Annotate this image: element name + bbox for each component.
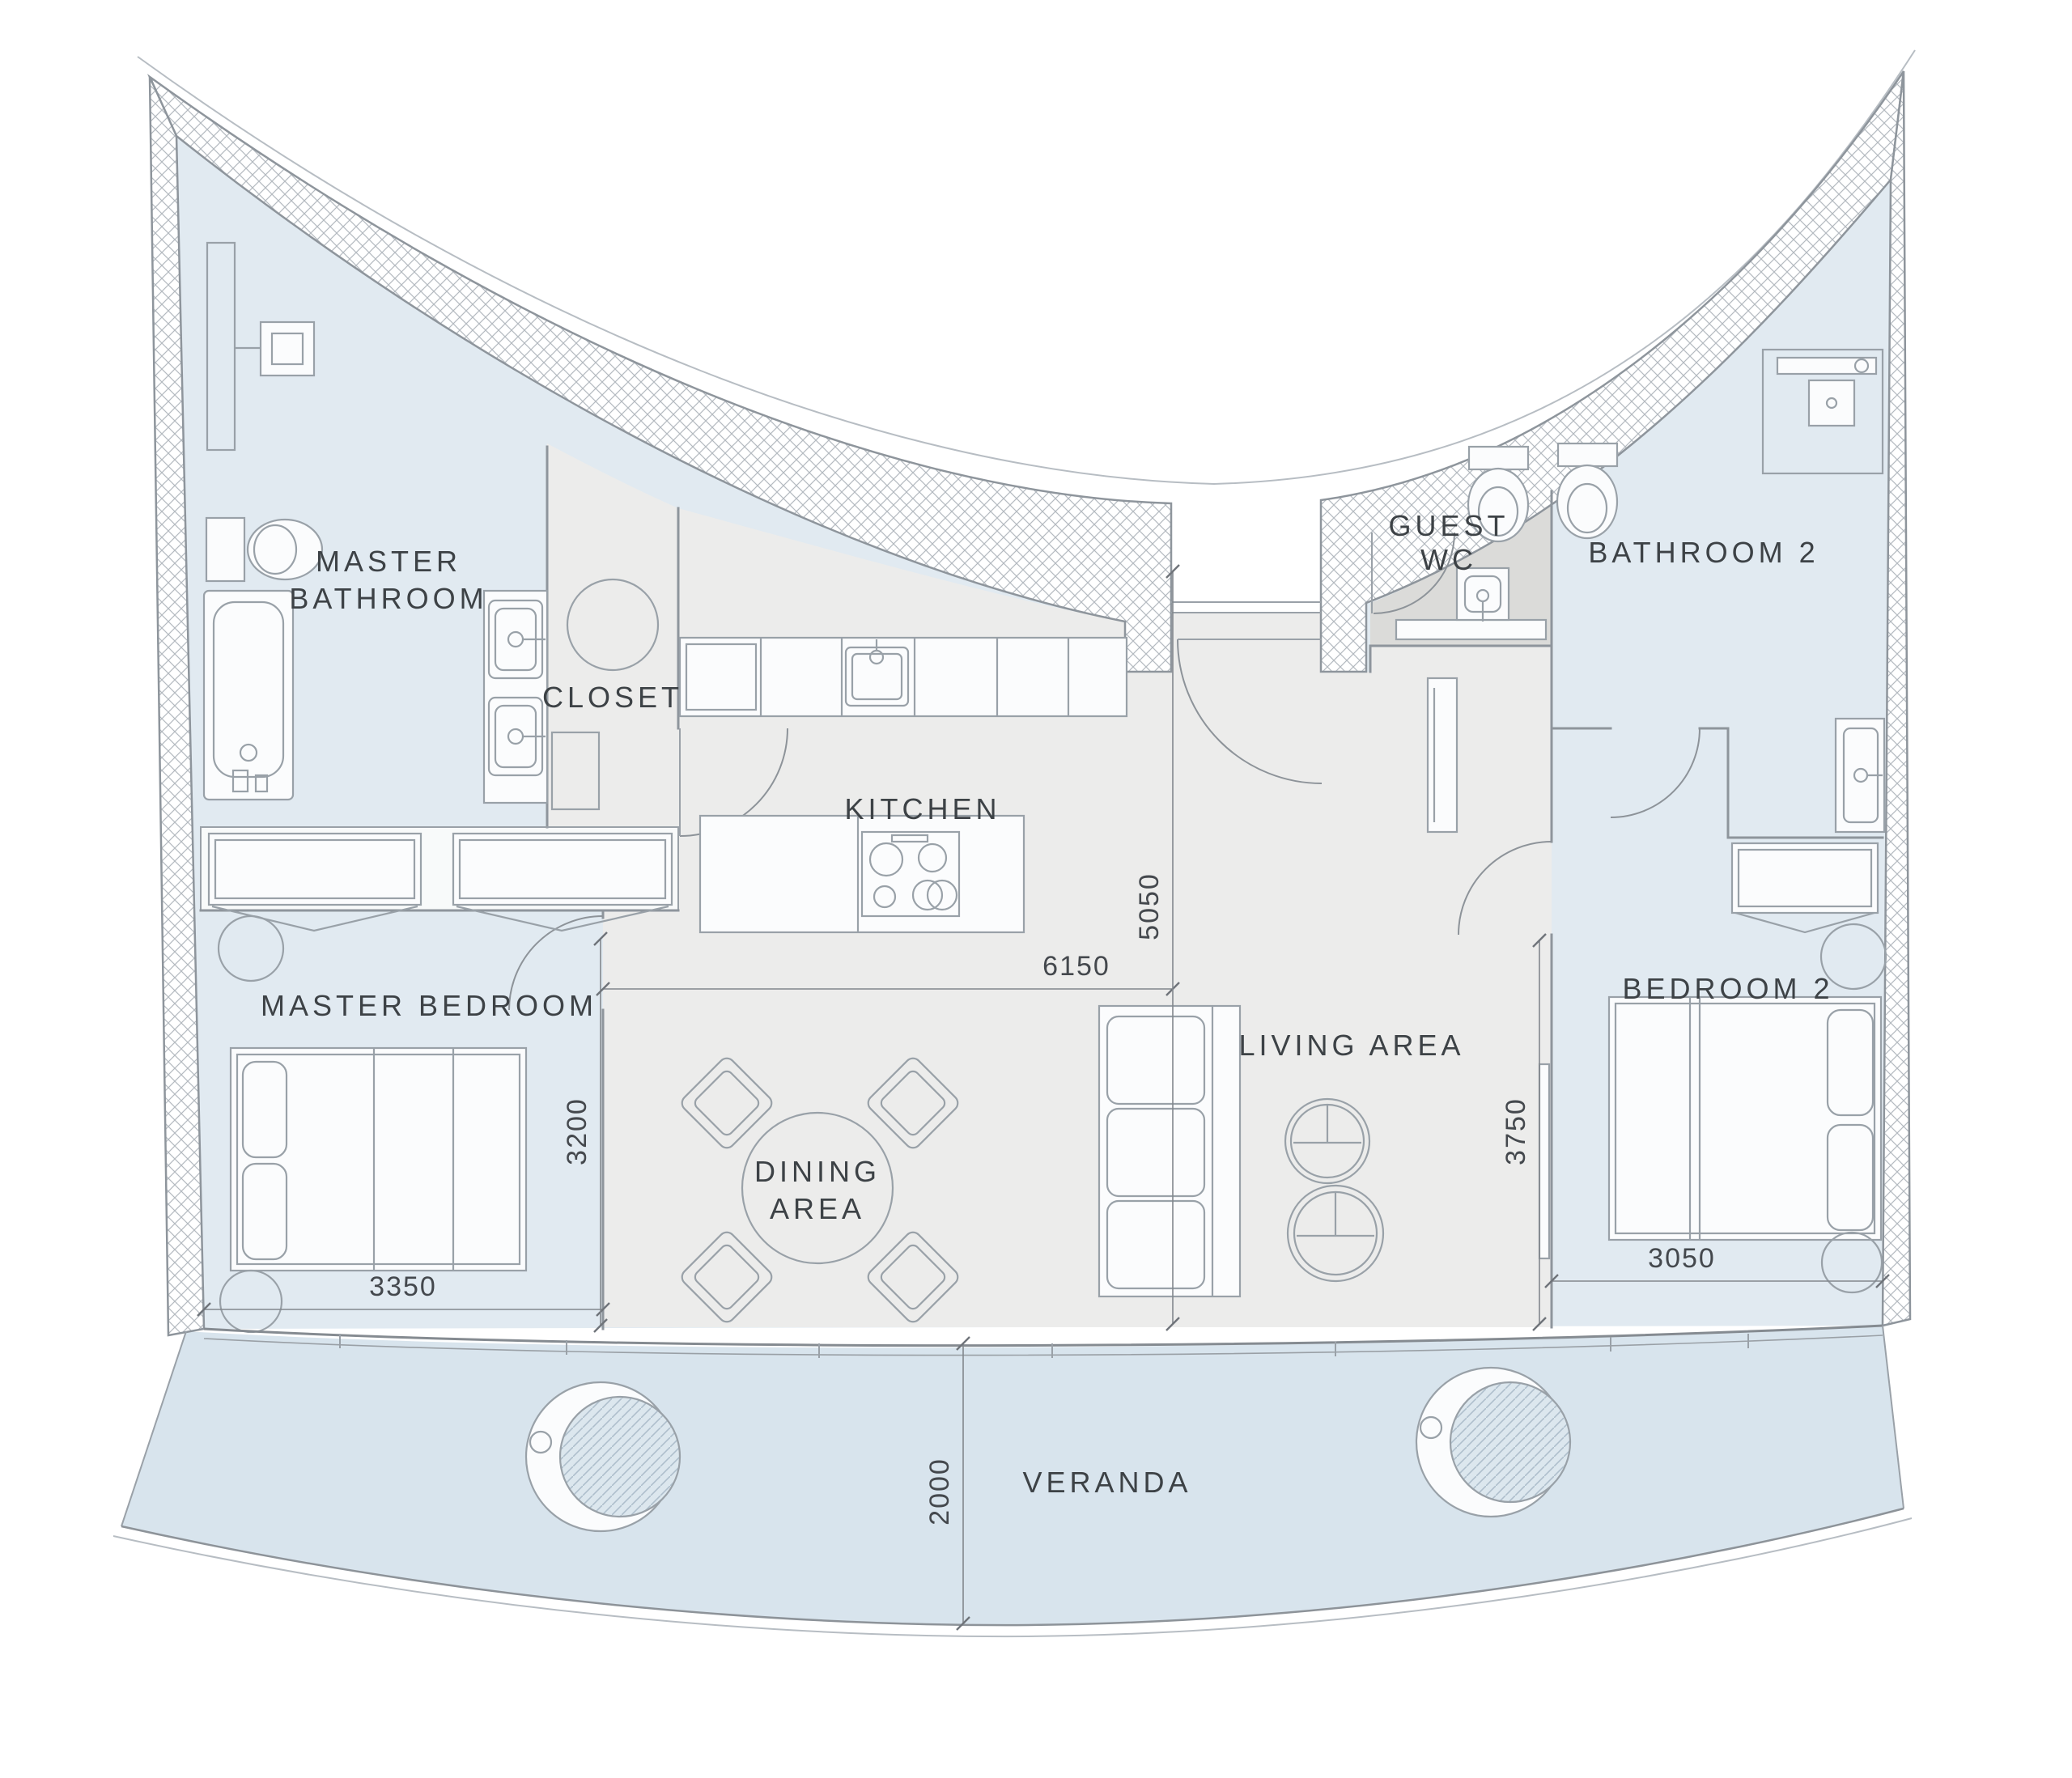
wardrobe-right bbox=[453, 834, 672, 905]
dim-text-3750: 3750 bbox=[1501, 1097, 1531, 1165]
toilet2-bowl bbox=[1557, 465, 1617, 538]
label-master-bathroom-line1: MASTER bbox=[316, 545, 461, 578]
pillow-2 bbox=[243, 1164, 287, 1259]
sofa-cushion-1 bbox=[1107, 1016, 1204, 1104]
room-fill-closet bbox=[547, 443, 678, 827]
label-dining-area-line1: DINING bbox=[754, 1155, 881, 1188]
hall-cabinet bbox=[1428, 678, 1457, 832]
dim-text-2000: 2000 bbox=[924, 1458, 955, 1526]
dim-text-5050: 5050 bbox=[1134, 872, 1165, 940]
sofa-cushion-3 bbox=[1107, 1201, 1204, 1288]
label-veranda: VERANDA bbox=[1022, 1466, 1191, 1499]
toilet2-tank bbox=[1558, 443, 1617, 466]
wardrobe-left bbox=[209, 834, 421, 905]
bed2-pillow-1 bbox=[1828, 1010, 1873, 1115]
kitchen-sink bbox=[846, 647, 908, 706]
dim-text-3050: 3050 bbox=[1648, 1243, 1716, 1274]
shower2-head bbox=[1809, 380, 1854, 426]
lounger-right-mattress bbox=[1450, 1382, 1570, 1502]
guest-wc-counter bbox=[1396, 620, 1546, 639]
pillow-1 bbox=[243, 1062, 287, 1157]
bed2-pillow-2 bbox=[1828, 1125, 1873, 1230]
floor-plan-page: 3350 3200 6150 5050 3750 3050 bbox=[0, 0, 2072, 1778]
room-fill-veranda bbox=[121, 1326, 1904, 1625]
label-master-bathroom-line2: BATHROOM bbox=[289, 582, 487, 615]
dim-text-3350: 3350 bbox=[369, 1271, 437, 1302]
toilet-tank bbox=[206, 518, 244, 581]
label-guest-wc-line2: WC bbox=[1420, 543, 1477, 576]
tv-unit bbox=[1539, 1064, 1549, 1258]
bed2-wardrobe bbox=[1732, 843, 1878, 913]
label-master-bedroom: MASTER BEDROOM bbox=[261, 989, 597, 1022]
dim-text-6150: 6150 bbox=[1042, 951, 1110, 982]
guest-wc-toilet-tank bbox=[1469, 447, 1528, 469]
lounger-left-knob bbox=[530, 1432, 551, 1453]
lounger-right-knob bbox=[1420, 1417, 1441, 1438]
label-kitchen: KITCHEN bbox=[844, 792, 1000, 825]
dim-text-3200: 3200 bbox=[562, 1097, 592, 1165]
label-bedroom-2: BEDROOM 2 bbox=[1622, 972, 1833, 1005]
label-closet: CLOSET bbox=[542, 681, 683, 714]
label-living-area: LIVING AREA bbox=[1238, 1029, 1464, 1062]
label-dining-area-line2: AREA bbox=[770, 1192, 865, 1225]
label-bathroom-2: BATHROOM 2 bbox=[1588, 536, 1819, 569]
shower-head bbox=[261, 322, 314, 376]
floor-plan-drawing: 3350 3200 6150 5050 3750 3050 bbox=[0, 0, 2072, 1778]
sofa-cushion-2 bbox=[1107, 1109, 1204, 1196]
lounger-left-mattress bbox=[560, 1397, 680, 1517]
label-guest-wc-line1: GUEST bbox=[1388, 509, 1509, 542]
